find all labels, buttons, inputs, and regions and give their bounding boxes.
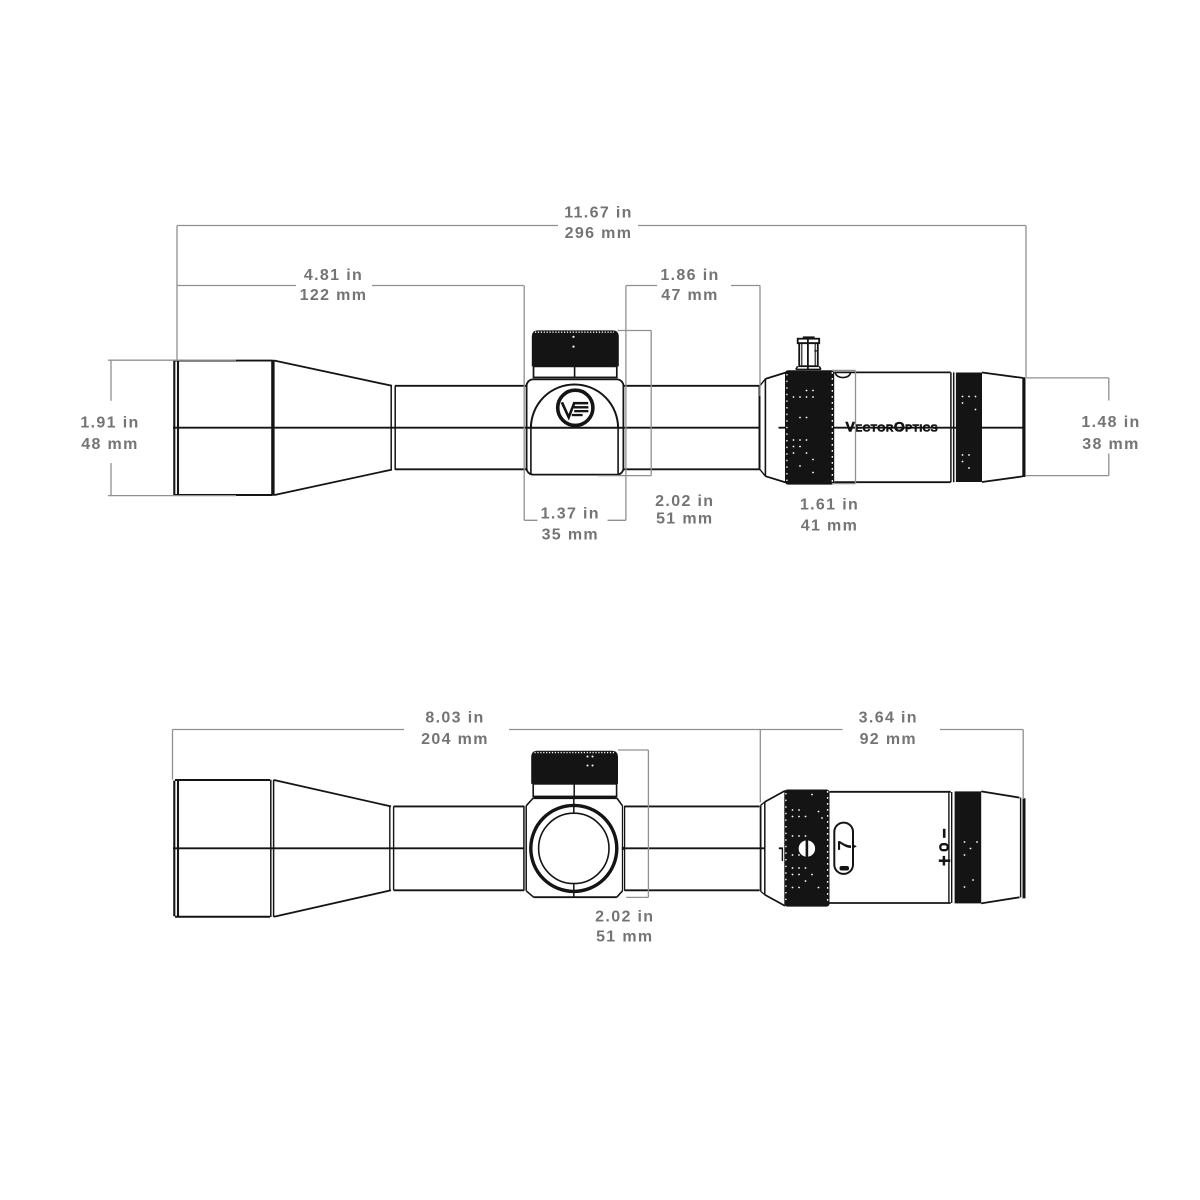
- svg-text:48 mm: 48 mm: [81, 436, 138, 453]
- svg-text:38 mm: 38 mm: [1082, 436, 1139, 453]
- svg-text:51 mm: 51 mm: [656, 511, 713, 528]
- svg-text:41 mm: 41 mm: [801, 518, 858, 535]
- svg-text:VECTOROPTICS: VECTOROPTICS: [846, 419, 939, 435]
- svg-text:1.91 in: 1.91 in: [80, 415, 139, 432]
- svg-text:204 mm: 204 mm: [421, 731, 489, 748]
- svg-text:51 mm: 51 mm: [596, 929, 653, 946]
- svg-text:122 mm: 122 mm: [300, 287, 368, 304]
- svg-text:8.03 in: 8.03 in: [425, 710, 484, 727]
- svg-text:2.02 in: 2.02 in: [655, 493, 714, 510]
- svg-text:296 mm: 296 mm: [565, 225, 633, 242]
- svg-text:47 mm: 47 mm: [661, 287, 718, 304]
- svg-text:92 mm: 92 mm: [860, 731, 917, 748]
- svg-text:1.37 in: 1.37 in: [541, 506, 600, 523]
- svg-text:11.67 in: 11.67 in: [564, 205, 633, 222]
- svg-text:1.48 in: 1.48 in: [1081, 414, 1140, 431]
- svg-text:1.61 in: 1.61 in: [800, 497, 859, 514]
- svg-text:7: 7: [834, 840, 855, 850]
- svg-text:4.81 in: 4.81 in: [304, 267, 363, 284]
- svg-text:3.64 in: 3.64 in: [859, 710, 918, 727]
- svg-text:35 mm: 35 mm: [542, 527, 599, 544]
- svg-text:2.02 in: 2.02 in: [595, 909, 654, 926]
- svg-text:1.86 in: 1.86 in: [660, 267, 719, 284]
